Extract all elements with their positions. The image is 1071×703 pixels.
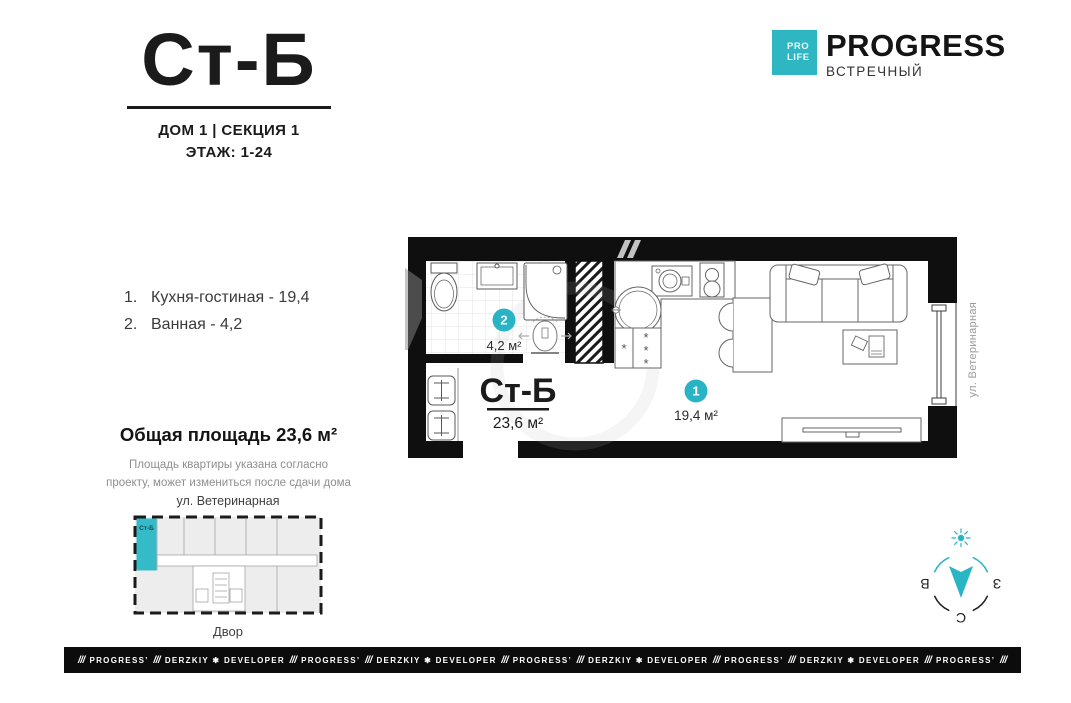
footer-brand-item: PROGRESS’ <box>301 656 360 665</box>
wall-top <box>408 237 957 261</box>
footer-separator: /// <box>925 655 932 666</box>
site-street-label: ул. Ветеринарная <box>108 494 348 508</box>
brand-text: PROGRESS ВСТРЕЧНЫЙ <box>826 30 1006 79</box>
floors-label: ЭТАЖ: 1-24 <box>98 142 360 165</box>
total-area-note-line2: проекту, может измениться после сдачи до… <box>97 475 360 493</box>
wall-right-bottom <box>928 406 957 458</box>
room2-area: 4,2 м² <box>487 338 523 353</box>
footer-brand-item: PROGRESS’ <box>724 656 783 665</box>
living-room-furniture <box>770 263 921 442</box>
footer-separator: /// <box>788 655 795 666</box>
room2-number: 2 <box>500 313 507 328</box>
compass-west: З <box>993 576 1001 592</box>
footer-separator: /// <box>153 655 160 666</box>
compass-east: В <box>920 576 929 592</box>
footer-separator: /// <box>365 655 372 666</box>
floor-plan: * *** <box>405 236 960 462</box>
footer-brand-item: DERZKIY ✱ DEVELOPER <box>165 656 285 665</box>
room-number: 2. <box>124 316 151 334</box>
wall-bathroom-bottom <box>426 354 523 363</box>
window <box>929 303 957 406</box>
kitchen-furniture: * *** <box>611 261 772 372</box>
room1-number: 1 <box>692 384 699 399</box>
tv-icon <box>803 428 901 432</box>
title-divider <box>127 106 331 109</box>
footer-brand-item: DERZKIY ✱ DEVELOPER <box>800 656 920 665</box>
toilet-tank-icon <box>431 263 457 273</box>
unit-total-area-label: 23,6 м² <box>493 415 543 432</box>
room-list: 1.Кухня-гостиная - 19,42.Ванная - 4,2 <box>124 289 310 343</box>
sun-icon <box>952 529 970 547</box>
footer-brand-item: PROGRESS’ <box>936 656 995 665</box>
pro-life-badge: PRO LIFE <box>772 30 817 75</box>
footer-brand-item: DERZKIY ✱ DEVELOPER <box>376 656 496 665</box>
compass-north: С <box>956 610 966 626</box>
room-number: 1. <box>124 289 151 307</box>
total-area-title: Общая площадь 23,6 м² <box>97 424 360 446</box>
developer-logo: PRO LIFE PROGRESS ВСТРЕЧНЫЙ <box>772 30 1006 79</box>
footer-brand-item: PROGRESS’ <box>513 656 572 665</box>
site-yard-label: Двор <box>108 624 348 639</box>
wall-right-top <box>928 237 957 303</box>
compass-needle-icon <box>949 566 973 598</box>
room-list-item: 2.Ванная - 4,2 <box>124 316 310 334</box>
page-title: Ст-Б <box>98 20 360 100</box>
site-plan-map: Ст-Б <box>133 515 323 615</box>
highlighted-unit-label: Ст-Б <box>139 525 154 532</box>
brand-name: PROGRESS <box>826 30 1006 61</box>
compass: В З С <box>903 521 1018 636</box>
footer-separator: /// <box>290 655 297 666</box>
wall-shaft-right <box>603 261 614 363</box>
unit-header: Ст-Б ДОМ 1 | СЕКЦИЯ 1 ЭТАЖ: 1-24 <box>98 20 360 165</box>
chair-icon <box>719 339 733 367</box>
brand-project-name: ВСТРЕЧНЫЙ <box>826 64 1006 79</box>
dining-table-icon <box>733 298 772 372</box>
total-area-block: Общая площадь 23,6 м² Площадь квартиры у… <box>97 424 360 493</box>
room1-area: 19,4 м² <box>674 408 718 423</box>
footer-brand-item: DERZKIY ✱ DEVELOPER <box>588 656 708 665</box>
footer-bar: ///PROGRESS’///DERZKIY ✱ DEVELOPER///PRO… <box>64 647 1021 673</box>
site-plan-block: ул. Ветеринарная Ст-Б Двор <box>108 494 348 639</box>
wall-left <box>408 237 426 458</box>
footer-separator: /// <box>501 655 508 666</box>
svg-text:*: * <box>643 356 648 371</box>
building-section-label: ДОМ 1 | СЕКЦИЯ 1 <box>98 120 360 143</box>
unit-code-label: Ст-Б <box>480 372 557 410</box>
room-label: Кухня-гостиная - 19,4 <box>151 289 310 307</box>
room-label: Ванная - 4,2 <box>151 316 242 334</box>
footer-brand-item: PROGRESS’ <box>89 656 148 665</box>
ventilation-shaft <box>575 261 603 363</box>
footer-separator: /// <box>78 655 85 666</box>
badge-line1: PRO <box>787 42 817 53</box>
svg-text:*: * <box>621 341 626 356</box>
unit-code-underline <box>487 408 549 411</box>
badge-line2: LIFE <box>787 53 817 64</box>
hallway-wardrobes <box>428 368 458 441</box>
room-list-item: 1.Кухня-гостиная - 19,4 <box>124 289 310 307</box>
street-label-vertical: ул. Ветеринарная <box>967 302 979 397</box>
floorplan-sheet: Ст-Б ДОМ 1 | СЕКЦИЯ 1 ЭТАЖ: 1-24 PRO LIF… <box>0 0 1071 703</box>
footer-separator: /// <box>577 655 584 666</box>
total-area-note: Площадь квартиры указана согласно проект… <box>97 457 360 493</box>
footer-separator: /// <box>713 655 720 666</box>
footer-separator: /// <box>1000 655 1007 666</box>
chair-icon <box>719 303 733 331</box>
total-area-note-line1: Площадь квартиры указана согласно <box>97 457 360 475</box>
wall-bottom-left <box>408 441 463 458</box>
